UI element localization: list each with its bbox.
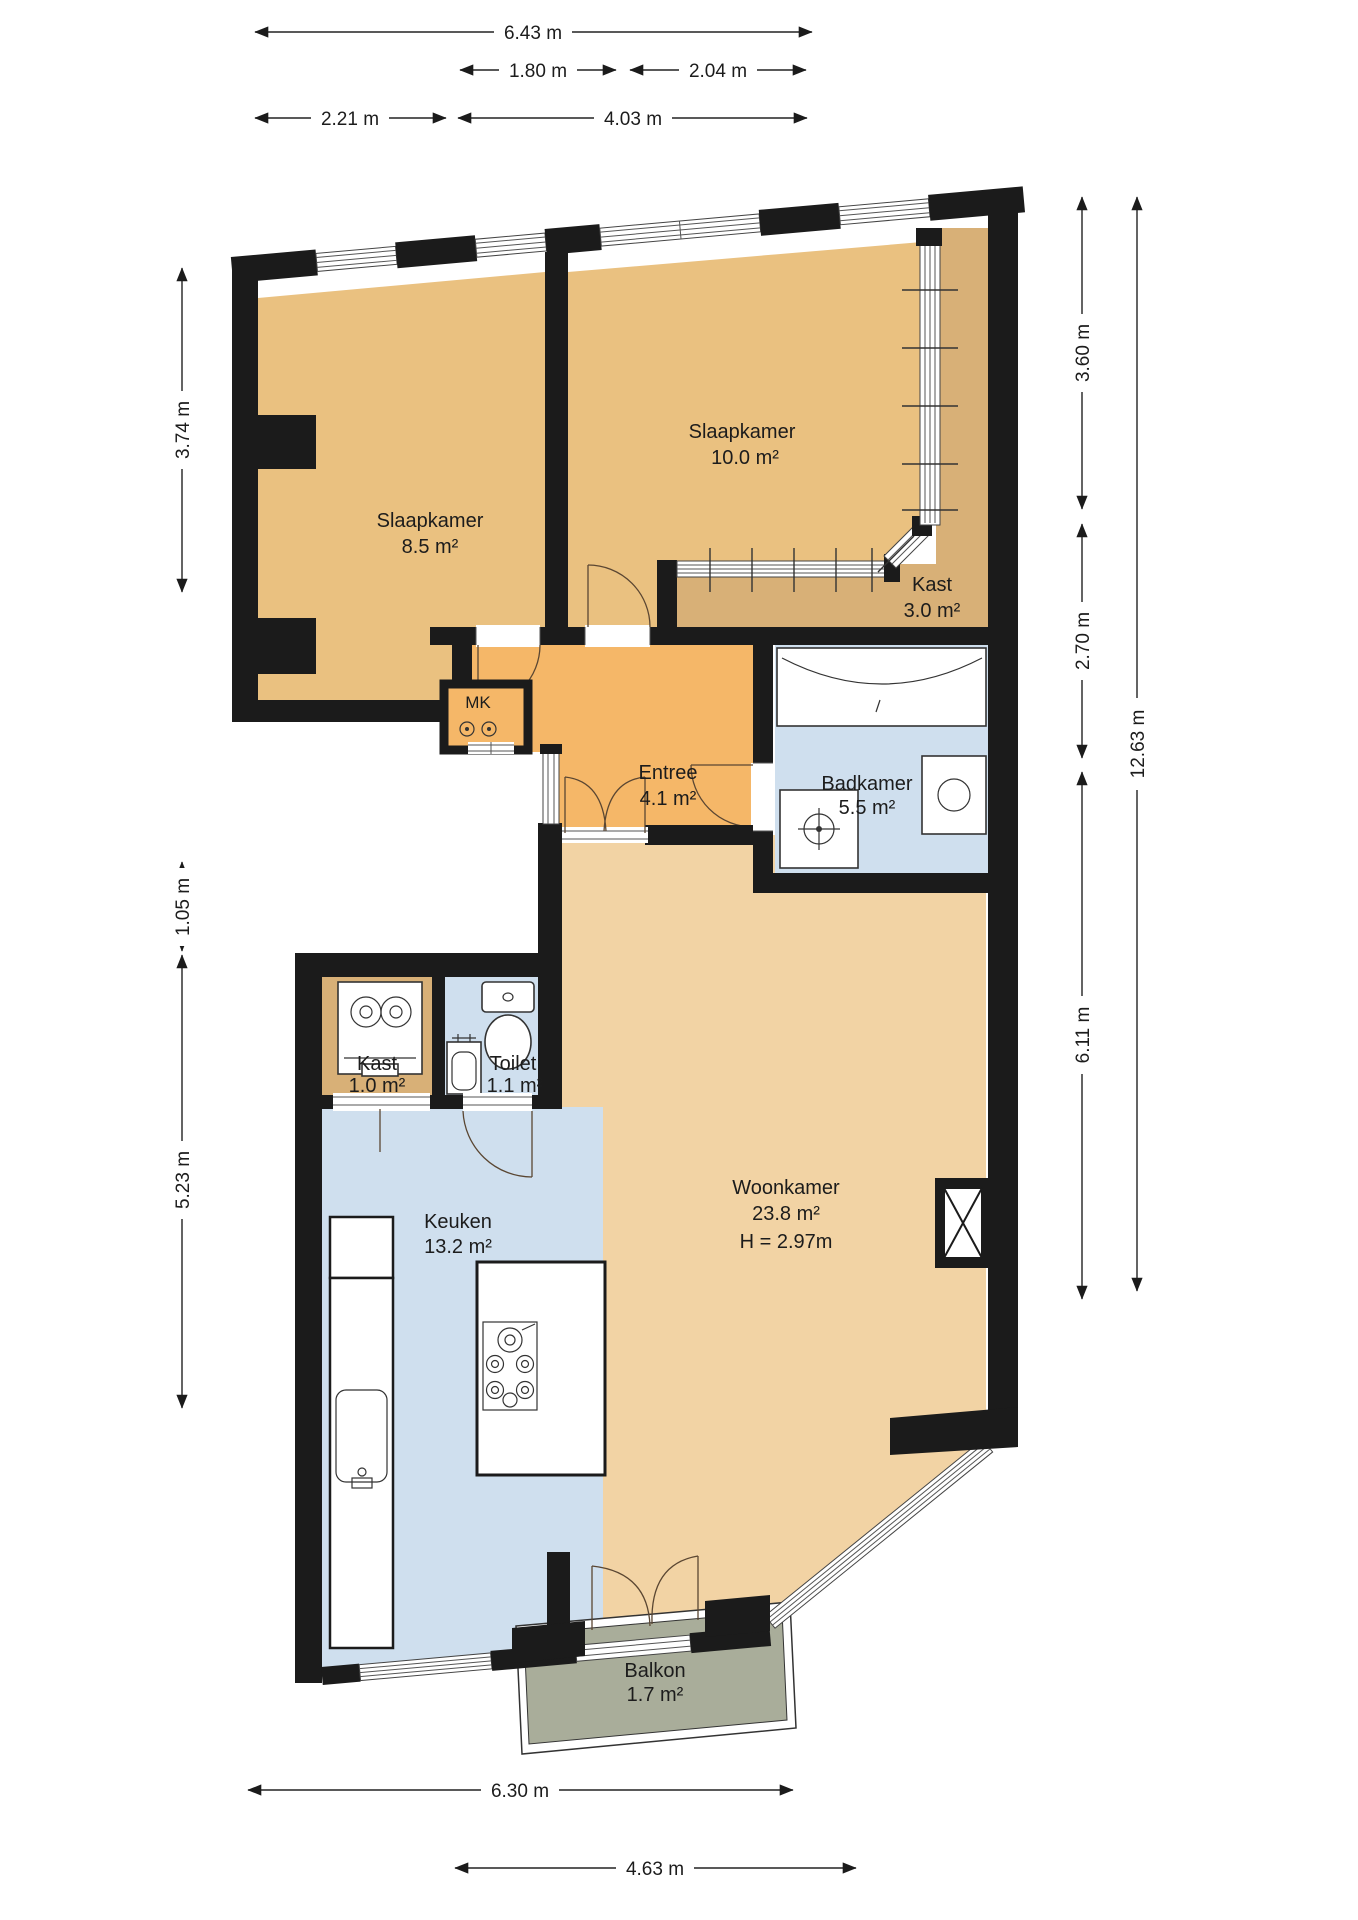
label-balkon: Balkon bbox=[624, 1660, 685, 1682]
balcony-door-stub-wall bbox=[547, 1552, 570, 1630]
label-toilet: Toilet bbox=[490, 1053, 537, 1075]
washer-icon bbox=[922, 756, 986, 834]
area-kast-boven: 3.0 m² bbox=[904, 600, 961, 622]
dim-top-row2-right: 4.03 m bbox=[604, 109, 662, 130]
label-entree: Entree bbox=[639, 762, 698, 784]
duct-shaft-icon bbox=[935, 1178, 990, 1268]
kitchen-counter bbox=[330, 1217, 393, 1648]
dim-bottom-keuken: 6.30 m bbox=[491, 1781, 549, 1802]
dim-left-bedroom: 3.74 m bbox=[173, 401, 194, 459]
area-entree: 4.1 m² bbox=[640, 788, 697, 810]
dimensions-bottom: 6.30 m 4.63 m bbox=[248, 1778, 856, 1880]
dimensions-right: 3.60 m 2.70 m 6.11 m 12.63 m bbox=[1070, 197, 1149, 1299]
badkamer-west-wall bbox=[753, 645, 773, 875]
bathtub-icon bbox=[777, 648, 986, 726]
balcony-pier-left bbox=[512, 1621, 585, 1663]
kitchen-island bbox=[477, 1262, 605, 1475]
east-wall bbox=[988, 198, 1018, 1445]
dim-left-keuken: 5.23 m bbox=[173, 1151, 194, 1209]
entree-south-wall bbox=[645, 825, 753, 845]
dim-bottom-balkon: 4.63 m bbox=[626, 1859, 684, 1880]
label-woonkamer: Woonkamer bbox=[732, 1177, 840, 1199]
floorplan-page: Slaapkamer 10.0 m² Slaapkamer 8.5 m² Kas… bbox=[0, 0, 1358, 1920]
kast-toilet-divider bbox=[432, 977, 445, 1095]
dim-top-row2-left: 2.21 m bbox=[321, 109, 379, 130]
kast-boven-south-wall bbox=[657, 627, 1010, 645]
label-slaapkamer-2: Slaapkamer bbox=[377, 510, 484, 532]
label-meterkast: MK bbox=[465, 693, 491, 712]
dim-left-small: 1.05 m bbox=[173, 878, 194, 936]
wall-step-tab-2 bbox=[258, 618, 316, 674]
area-badkamer: 5.5 m² bbox=[839, 797, 896, 819]
label-keuken: Keuken bbox=[424, 1211, 492, 1233]
dim-top-total: 6.43 m bbox=[504, 23, 562, 44]
area-slaapkamer-1: 10.0 m² bbox=[711, 447, 779, 469]
bedroom-divider-wall bbox=[545, 252, 568, 642]
west-wall-lower bbox=[295, 953, 322, 1683]
height-woonkamer: H = 2.97m bbox=[740, 1231, 833, 1253]
dim-right-total: 12.63 m bbox=[1128, 710, 1149, 779]
area-woonkamer: 23.8 m² bbox=[752, 1203, 820, 1225]
balcony-pier-right bbox=[705, 1595, 770, 1637]
dim-top-left-inner: 1.80 m bbox=[509, 61, 567, 82]
badkamer-south-wall bbox=[753, 873, 1010, 893]
washbasin-icon bbox=[447, 1034, 481, 1094]
area-keuken: 13.2 m² bbox=[424, 1236, 492, 1258]
wall-step-tab-1 bbox=[258, 415, 316, 469]
dim-top-right-inner: 2.04 m bbox=[689, 61, 747, 82]
floorplan-drawing: Slaapkamer 10.0 m² Slaapkamer 8.5 m² Kas… bbox=[0, 0, 1358, 1920]
dim-right-middle: 2.70 m bbox=[1073, 612, 1094, 670]
room-kast-boven-strip bbox=[936, 228, 988, 570]
dim-right-bottom: 6.11 m bbox=[1073, 1007, 1094, 1064]
area-balkon: 1.7 m² bbox=[627, 1684, 684, 1706]
label-badkamer: Badkamer bbox=[821, 773, 912, 795]
label-kast-boven: Kast bbox=[912, 574, 952, 596]
area-kast-onder: 1.0 m² bbox=[349, 1075, 406, 1097]
area-slaapkamer-2: 8.5 m² bbox=[402, 536, 459, 558]
area-toilet: 1.1 m² bbox=[487, 1075, 544, 1097]
label-kast-onder: Kast bbox=[357, 1053, 397, 1075]
lower-section-north-wall bbox=[295, 953, 562, 977]
bedroom2-south-wall bbox=[232, 700, 470, 722]
dimensions-top: 6.43 m 1.80 m 2.04 m 2.21 m 4.03 m bbox=[255, 20, 812, 130]
dim-right-top: 3.60 m bbox=[1073, 324, 1094, 382]
label-slaapkamer-1: Slaapkamer bbox=[689, 421, 796, 443]
west-wall-upper bbox=[232, 262, 258, 718]
dimensions-left: 3.74 m 1.05 m 5.23 m bbox=[170, 268, 194, 1408]
